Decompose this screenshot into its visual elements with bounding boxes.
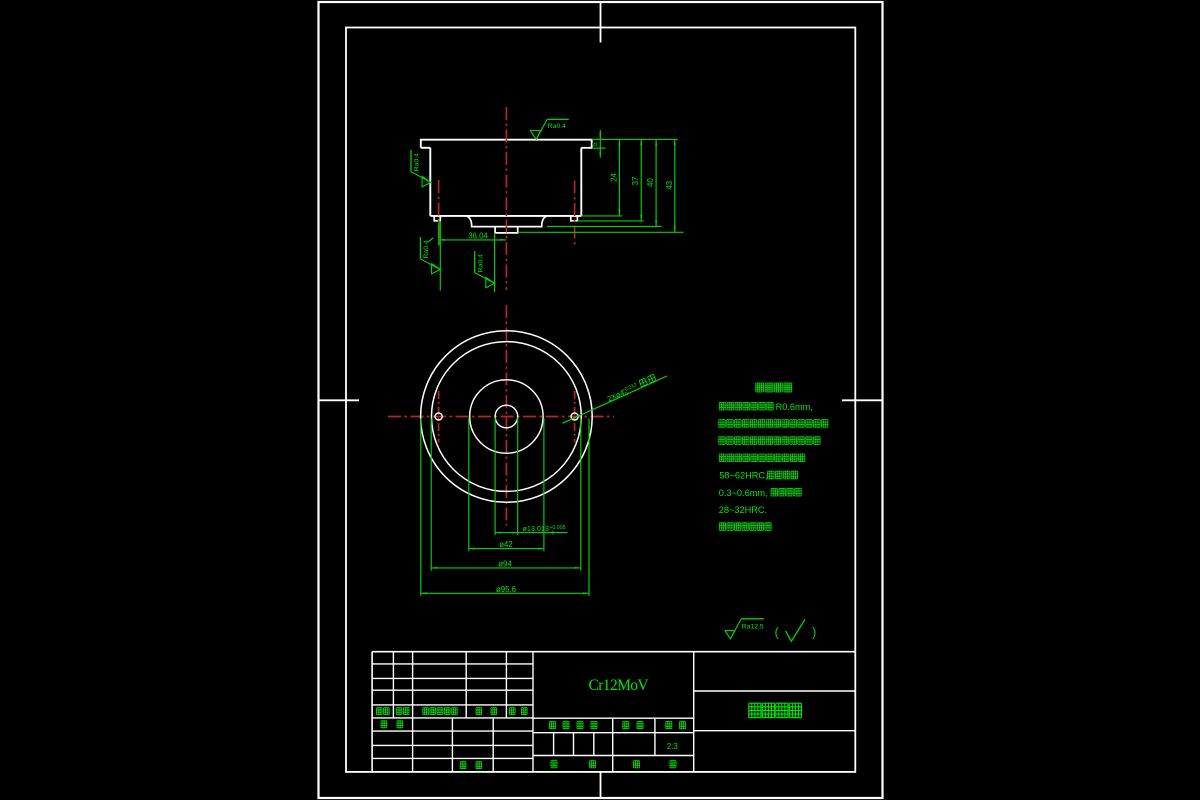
svg-text:Ra0.4: Ra0.4 <box>477 254 484 272</box>
svg-text:28~32HRC.: 28~32HRC. <box>719 505 767 515</box>
svg-text:37: 37 <box>631 177 640 186</box>
svg-text:ø94: ø94 <box>498 560 512 569</box>
svg-text:0: 0 <box>552 530 555 536</box>
svg-text:Ra0.4: Ra0.4 <box>414 153 421 171</box>
svg-text:58~62HRC,: 58~62HRC, <box>719 471 767 481</box>
svg-text:R0.6mm,: R0.6mm, <box>776 402 813 412</box>
svg-text:40: 40 <box>646 178 655 187</box>
svg-text:ø13.013: ø13.013 <box>523 524 549 533</box>
svg-text:2:3: 2:3 <box>667 742 678 751</box>
svg-text:Cr12MoV: Cr12MoV <box>589 677 650 694</box>
svg-text:ø95.6: ø95.6 <box>496 585 516 594</box>
svg-text:Ra12.5: Ra12.5 <box>742 623 764 630</box>
svg-text:ø42: ø42 <box>499 540 512 549</box>
svg-text:): ) <box>812 625 816 640</box>
svg-text:0: 0 <box>624 391 629 398</box>
svg-text:43: 43 <box>665 181 674 190</box>
svg-text:24: 24 <box>609 173 618 182</box>
svg-text:Ra0.4: Ra0.4 <box>548 123 566 130</box>
svg-text:(: ( <box>775 625 780 640</box>
svg-text:Ra0.4: Ra0.4 <box>423 240 430 258</box>
svg-text:36.04: 36.04 <box>468 231 488 240</box>
svg-text:5: 5 <box>590 142 599 146</box>
svg-text:0.3~0.6mm,: 0.3~0.6mm, <box>719 488 768 498</box>
